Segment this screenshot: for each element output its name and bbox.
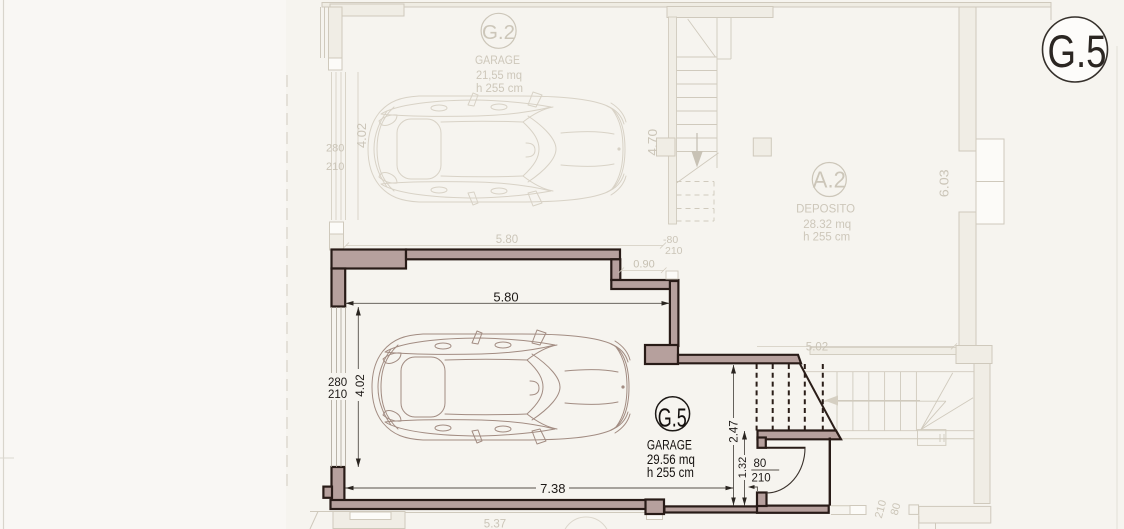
svg-text:80: 80 <box>754 458 767 470</box>
svg-text:4.02: 4.02 <box>355 374 367 396</box>
svg-text:h 255 cm: h 255 cm <box>476 83 523 95</box>
svg-text:28.32 mq: 28.32 mq <box>803 219 851 231</box>
svg-text:21,55 mq: 21,55 mq <box>476 70 522 82</box>
svg-text:5.80: 5.80 <box>496 234 518 246</box>
svg-text:7.38: 7.38 <box>540 481 565 496</box>
svg-text:210: 210 <box>326 161 344 173</box>
svg-text:210: 210 <box>665 245 683 257</box>
svg-text:5.02: 5.02 <box>806 342 828 354</box>
svg-text:GARAGE: GARAGE <box>475 55 520 67</box>
svg-text:h 255 cm: h 255 cm <box>647 465 694 480</box>
svg-text:210: 210 <box>328 389 347 401</box>
svg-text:G.5: G.5 <box>1048 26 1107 77</box>
svg-text:DEPOSITO: DEPOSITO <box>796 204 855 216</box>
svg-text:A.2: A.2 <box>813 167 846 193</box>
svg-text:6.03: 6.03 <box>936 169 951 197</box>
svg-text:5.37: 5.37 <box>484 519 506 529</box>
svg-text:280: 280 <box>326 143 344 155</box>
svg-text:G.2: G.2 <box>482 21 515 44</box>
svg-text:4.02: 4.02 <box>355 123 369 148</box>
svg-text:GARAGE: GARAGE <box>647 437 692 452</box>
svg-text:210: 210 <box>752 473 771 485</box>
svg-text:280: 280 <box>328 377 347 389</box>
svg-text:4.70: 4.70 <box>645 129 660 156</box>
svg-text:G.5: G.5 <box>658 403 687 433</box>
svg-text:5.80: 5.80 <box>493 290 518 305</box>
svg-text:0.90: 0.90 <box>633 259 654 271</box>
svg-text:h 255 cm: h 255 cm <box>803 232 850 244</box>
svg-text:1.32: 1.32 <box>737 457 749 478</box>
svg-text:2.47: 2.47 <box>728 420 740 442</box>
